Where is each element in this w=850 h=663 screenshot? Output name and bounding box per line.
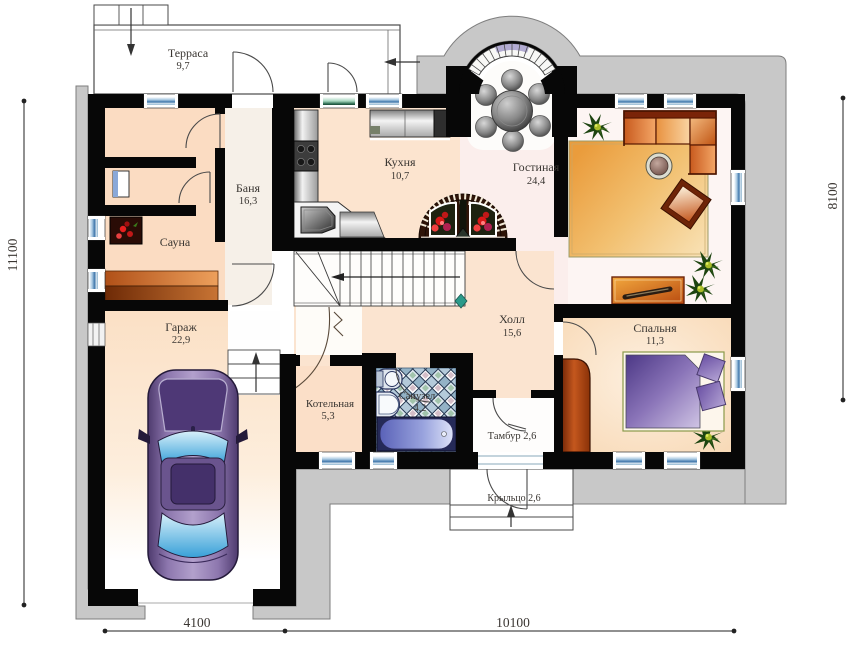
svg-text:4100: 4100 — [184, 615, 211, 630]
svg-text:9,7: 9,7 — [176, 61, 189, 72]
svg-text:Сауна: Сауна — [160, 235, 191, 249]
svg-text:11,3: 11,3 — [646, 336, 664, 347]
svg-text:Холл: Холл — [499, 312, 525, 326]
svg-text:Крыльцо 2,6: Крыльцо 2,6 — [487, 493, 540, 504]
svg-text:22,9: 22,9 — [172, 335, 190, 346]
svg-text:Спальня: Спальня — [633, 321, 677, 335]
svg-text:Гостиная: Гостиная — [513, 160, 560, 174]
svg-text:Санузел: Санузел — [399, 391, 436, 402]
svg-text:11100: 11100 — [5, 238, 20, 271]
svg-text:10,7: 10,7 — [391, 171, 409, 182]
svg-text:15,6: 15,6 — [503, 328, 521, 339]
svg-text:5,3: 5,3 — [321, 411, 334, 422]
svg-text:24,4: 24,4 — [527, 176, 546, 187]
svg-text:10100: 10100 — [496, 615, 530, 630]
svg-text:Баня: Баня — [236, 181, 261, 195]
svg-text:Котельная: Котельная — [306, 398, 354, 410]
svg-text:16,3: 16,3 — [239, 196, 257, 207]
svg-text:4,2: 4,2 — [414, 403, 427, 414]
svg-text:Кухня: Кухня — [384, 155, 416, 169]
svg-text:Гараж: Гараж — [165, 320, 197, 334]
svg-text:8100: 8100 — [825, 182, 840, 209]
svg-text:Тамбур 2,6: Тамбур 2,6 — [488, 431, 537, 442]
svg-text:Терраса: Терраса — [168, 46, 209, 60]
